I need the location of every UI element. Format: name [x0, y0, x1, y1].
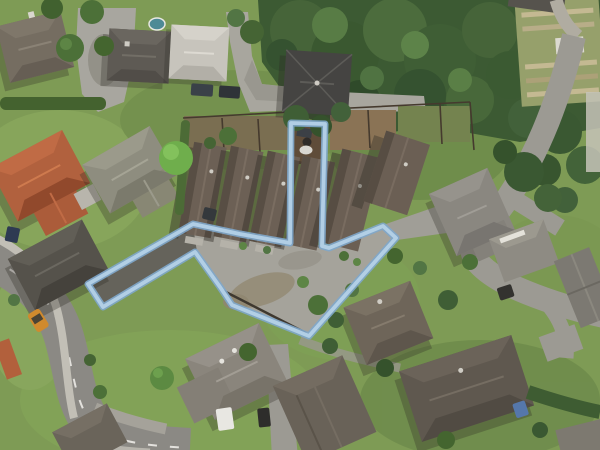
greenhouse-roof	[586, 92, 600, 172]
car-top-2	[219, 85, 241, 98]
car-top-1	[191, 83, 214, 97]
house-roof-top-1	[100, 28, 171, 89]
aerial-map[interactable]	[0, 0, 600, 450]
aerial-photo	[0, 0, 600, 450]
house-roof-top-2	[163, 24, 229, 86]
car-bottom	[257, 407, 271, 427]
pool	[149, 18, 165, 30]
van-white	[216, 407, 235, 431]
